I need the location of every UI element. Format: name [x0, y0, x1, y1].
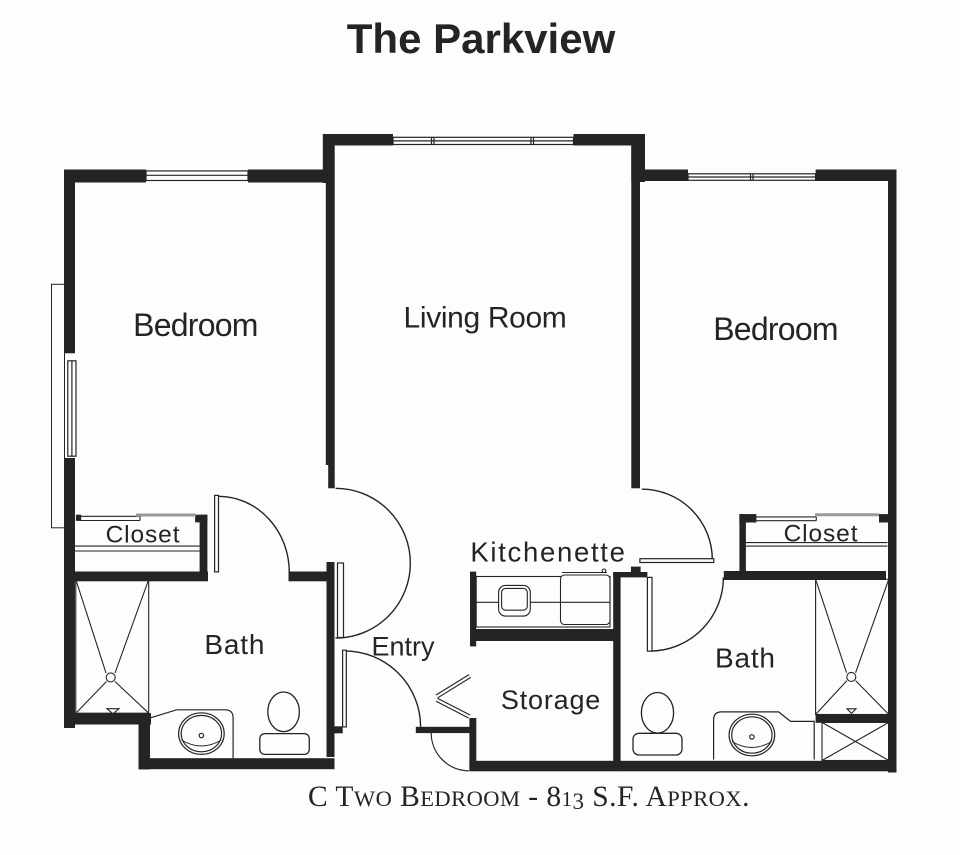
svg-text:Closet: Closet — [784, 520, 859, 547]
svg-text:Entry: Entry — [371, 632, 435, 662]
svg-text:C TWO BEDROOM - 813 S.F. APPRO: C TWO BEDROOM - 813 S.F. APPROX. — [308, 781, 750, 814]
svg-text:Kitchenette: Kitchenette — [470, 537, 626, 568]
svg-text:Storage: Storage — [501, 685, 601, 715]
svg-text:Bedroom: Bedroom — [713, 311, 838, 347]
svg-text:Bedroom: Bedroom — [133, 307, 258, 343]
svg-text:The Parkview: The Parkview — [347, 15, 616, 62]
svg-text:Bath: Bath — [204, 629, 265, 660]
svg-text:Bath: Bath — [715, 643, 776, 674]
svg-text:Closet: Closet — [106, 521, 181, 548]
svg-text:Living Room: Living Room — [404, 302, 567, 335]
